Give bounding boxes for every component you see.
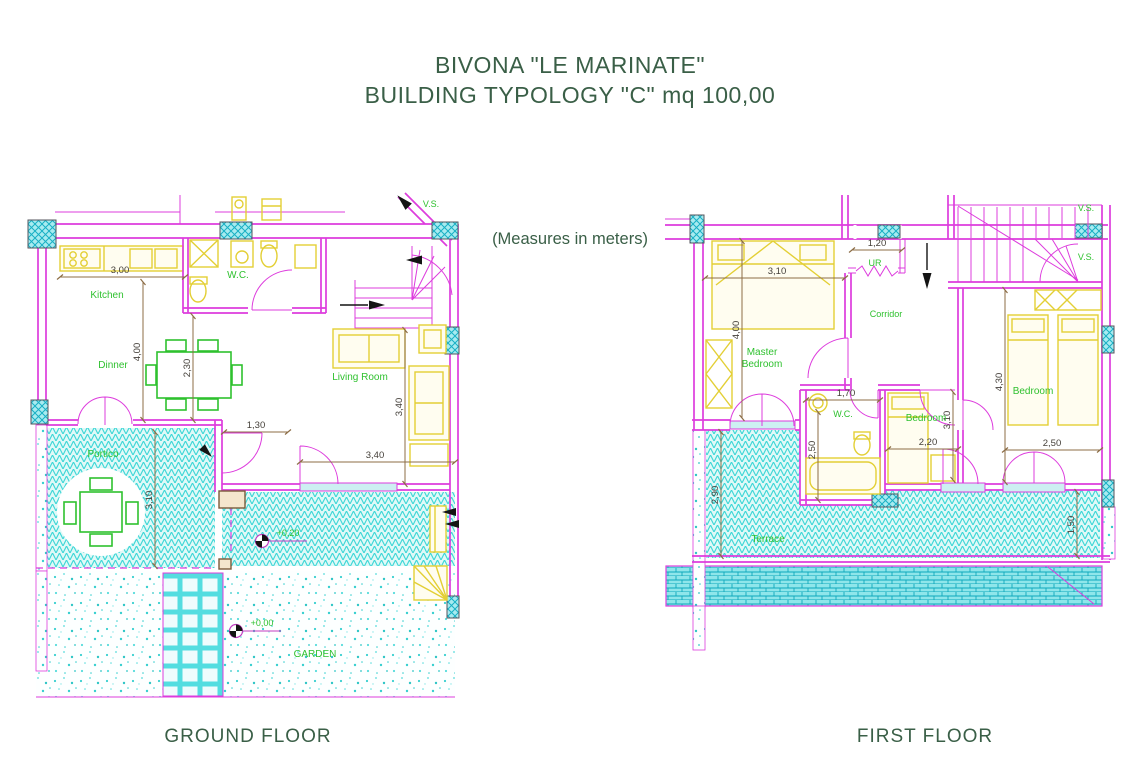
master-terrace-door [730,394,795,429]
floor-plans-canvas: V.S. [0,0,1140,760]
right-bedroom-door [963,400,993,430]
staircase-first [923,205,1103,289]
dining-table [146,340,242,410]
wc-label-first: W.C. [833,409,853,419]
svg-text:+0,00: +0,00 [251,618,274,628]
svg-text:3,00: 3,00 [111,265,130,276]
master-bedroom-label-1: Master [747,347,778,358]
svg-text:3,40: 3,40 [366,450,385,461]
svg-text:+0,20: +0,20 [277,528,300,538]
column [447,596,459,618]
ground-floor-caption: GROUND FLOOR [118,726,378,748]
svg-text:2,50: 2,50 [807,441,818,460]
garden-steps [414,566,447,600]
column [690,215,704,243]
garden-area [36,571,455,697]
vs-label-first-mid: V.S. [1078,252,1094,262]
svg-text:1,70: 1,70 [837,388,856,399]
master-wardrobe [706,340,732,408]
svg-text:2,50: 2,50 [1043,438,1062,449]
first-floor-caption: FIRST FLOOR [795,726,1055,748]
portico-label: Portico [87,449,119,460]
vs-label-ground: V.S. [423,199,439,209]
svg-text:4,30: 4,30 [994,373,1005,392]
master-bed [712,241,834,329]
wc-room [183,238,326,313]
entry-door [222,433,262,473]
svg-text:4,00: 4,00 [132,343,143,362]
garden-tile-path [163,573,223,696]
ground-floor-plan: V.S. [28,192,459,697]
column [1102,480,1114,507]
right-bedroom-furniture [1008,290,1101,425]
column [220,222,252,239]
drawing-title: BIVONA "LE MARINATE" BUILDING TYPOLOGY "… [0,50,1140,110]
title-line-1: BIVONA "LE MARINATE" [0,50,1140,80]
terrace-french-door [1003,452,1065,492]
terrace-label: Terrace [751,534,785,545]
svg-text:2,30: 2,30 [182,359,193,378]
ur-label: UR [869,258,882,268]
measures-note: (Measures in meters) [455,230,685,249]
porch-pillar [219,491,245,508]
french-door-dinner [78,397,132,425]
svg-text:3,10: 3,10 [768,266,787,277]
porch-pillar [219,559,231,569]
svg-text:1,30: 1,30 [247,420,266,431]
vs-label-first-top: V.S. [1078,203,1094,213]
master-door [808,338,848,378]
title-line-2: BUILDING TYPOLOGY "C" mq 100,00 [0,80,1140,110]
bedroom-center-label: Bedroom [906,413,947,424]
column [878,225,900,238]
svg-text:3,10: 3,10 [144,491,155,510]
svg-text:2,20: 2,20 [919,437,938,448]
dinner-label: Dinner [98,360,128,371]
svg-text:1,20: 1,20 [868,238,887,249]
wc-label-ground: W.C. [227,270,249,281]
master-bedroom-label-2: Bedroom [742,359,783,370]
column [445,327,459,354]
svg-text:3,40: 3,40 [394,398,405,417]
living-room-sofas [333,325,449,466]
first-floor-plan: V.S. V.S. [665,195,1115,650]
living-room-label: Living Room [332,372,388,383]
svg-text:1,50: 1,50 [1066,516,1077,535]
garden-bench [430,506,446,552]
column [31,400,48,424]
garden-label: GARDEN [294,649,337,660]
portico-table [57,468,145,556]
pergola-strip [666,566,1102,606]
svg-text:2,90: 2,90 [710,486,721,505]
staircase-ground [340,192,452,332]
column [1102,326,1114,353]
bedroom-right-label: Bedroom [1013,386,1054,397]
corridor-label: Corridor [870,309,903,319]
column [872,494,898,507]
kitchen-label: Kitchen [90,290,123,301]
drawing-sheet: V.S. [0,0,1140,760]
column [28,220,56,248]
svg-text:4,00: 4,00 [731,321,742,340]
walkway-paving [222,492,455,566]
